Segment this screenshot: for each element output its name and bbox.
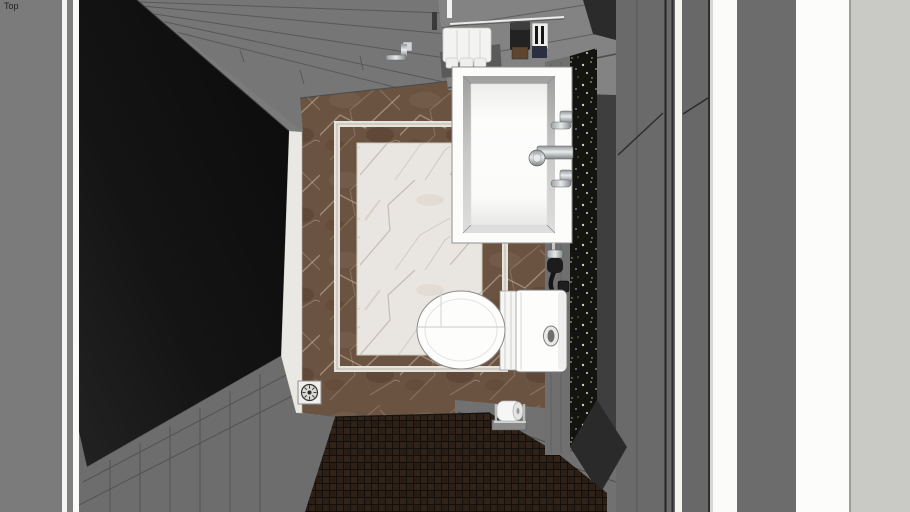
faucet-handle-left-base: [560, 111, 572, 123]
faucet-handle-left[interactable]: [551, 122, 571, 129]
sink[interactable]: [452, 67, 573, 243]
soap-dispenser-box[interactable]: [510, 21, 530, 59]
scene-canvas[interactable]: [0, 0, 910, 512]
toilet-paper-holder[interactable]: [492, 401, 526, 430]
striped-tumbler[interactable]: [532, 23, 548, 58]
granite-strip[interactable]: [570, 48, 597, 447]
wall-seam-mark: [432, 12, 437, 30]
shelf-support: [447, 0, 452, 18]
faucet-handle-right[interactable]: [551, 180, 571, 187]
sketchup-viewport[interactable]: Top: [0, 0, 910, 512]
toilet-seat[interactable]: [417, 291, 505, 369]
right-wall-section-stripes[interactable]: [597, 0, 910, 512]
floor-drain[interactable]: [298, 381, 321, 404]
left-wall-section-stripes[interactable]: [62, 0, 79, 512]
view-label: Top: [4, 1, 19, 12]
